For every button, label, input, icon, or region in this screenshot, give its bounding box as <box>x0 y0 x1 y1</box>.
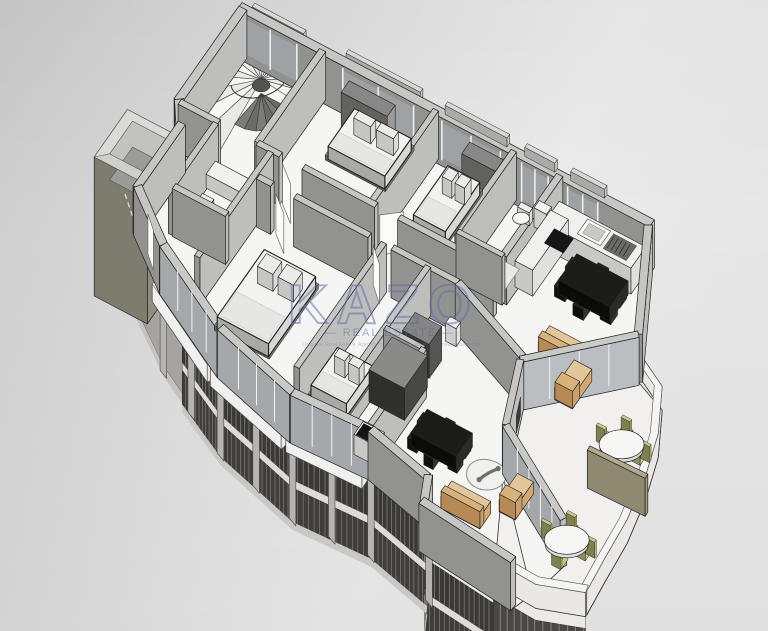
svg-text:KAZO: KAZO <box>288 273 480 335</box>
svg-text:Original Real Estate Agency si: Original Real Estate Agency since 1984 -… <box>302 342 483 348</box>
svg-text:— REAL ESTATE —: — REAL ESTATE — <box>325 327 456 339</box>
